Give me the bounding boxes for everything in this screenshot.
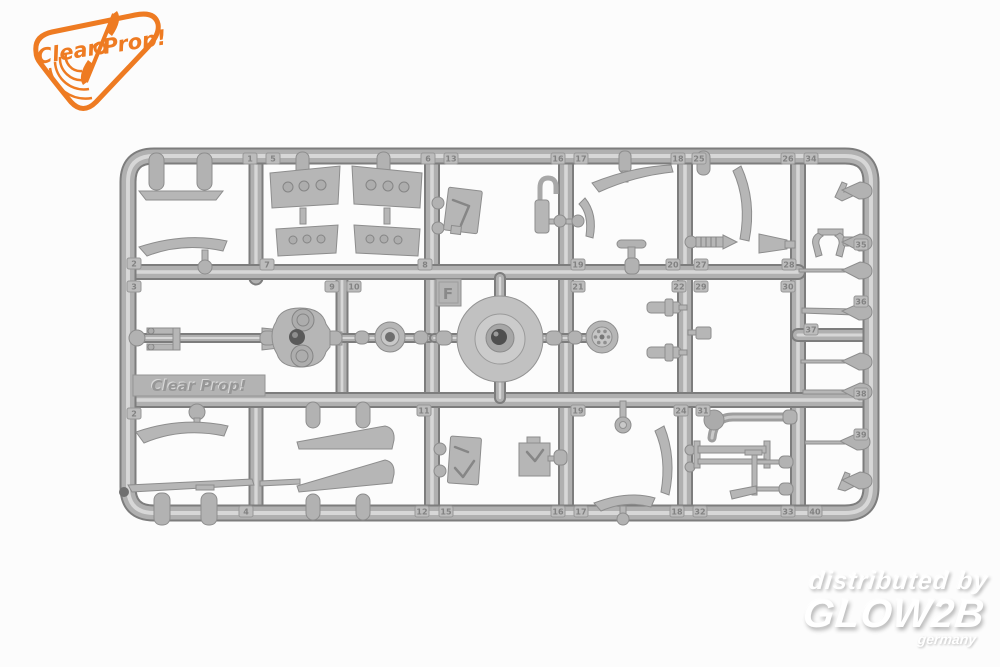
- part-number-tab: 3: [127, 281, 141, 292]
- svg-text:37: 37: [805, 326, 816, 335]
- part-number-tab: 7: [260, 259, 274, 270]
- part-number-tab: 13: [444, 153, 458, 164]
- part-number-tab: 12: [415, 506, 429, 517]
- svg-text:39: 39: [855, 431, 867, 440]
- part-needle-1: [799, 262, 872, 279]
- svg-text:3: 3: [131, 283, 137, 292]
- part-number-tab: 25: [692, 153, 706, 164]
- sprue-letter-plate: F: [436, 279, 461, 306]
- part-number-tab: 34: [804, 153, 818, 164]
- part-gear-door-left: [655, 426, 672, 495]
- svg-text:8: 8: [422, 261, 428, 270]
- svg-text:40: 40: [809, 508, 821, 517]
- part-number-tab: 17: [574, 506, 588, 517]
- part-number-tab: 39: [854, 429, 868, 440]
- svg-text:18: 18: [672, 155, 684, 164]
- svg-text:4: 4: [243, 508, 249, 517]
- part-number-tab: 37: [804, 324, 818, 335]
- part-number-tab: 35: [854, 239, 868, 250]
- part-number-tab: 22: [672, 281, 686, 292]
- svg-text:28: 28: [783, 261, 795, 270]
- svg-text:22: 22: [673, 283, 684, 292]
- part-number-tab: 24: [674, 405, 688, 416]
- svg-text:16: 16: [552, 155, 564, 164]
- part-canopy-blade-bottom: [136, 404, 228, 443]
- svg-text:30: 30: [782, 283, 794, 292]
- gate-mark: [119, 487, 129, 497]
- part-number-tab: 33: [781, 506, 795, 517]
- part-needle-3: [801, 353, 872, 370]
- part-number-tab: 15: [439, 506, 453, 517]
- svg-text:13: 13: [445, 155, 456, 164]
- part-exhaust-pipe: [704, 410, 797, 438]
- part-instrument-panels: [270, 152, 422, 256]
- svg-text:F: F: [443, 285, 453, 303]
- part-number-tab: 27: [694, 259, 708, 270]
- svg-text:38: 38: [855, 390, 867, 399]
- part-prop-blade-1: [297, 402, 394, 449]
- part-number-tab: 16: [551, 506, 565, 517]
- part-number-tab: 21: [571, 281, 585, 292]
- part-number-tab: 38: [854, 388, 868, 399]
- part-wheel-spoked: [568, 321, 618, 353]
- part-number-tab: 4: [239, 506, 253, 517]
- part-number-tab: 6: [421, 153, 435, 164]
- part-control-lever: [730, 450, 793, 499]
- svg-text:20: 20: [667, 261, 679, 270]
- part-number-tab: 28: [782, 259, 796, 270]
- svg-text:26: 26: [782, 155, 794, 164]
- svg-text:12: 12: [416, 508, 427, 517]
- part-small-bracket-bottom: [838, 472, 872, 491]
- part-engine-mount: [260, 308, 342, 367]
- svg-text:32: 32: [694, 508, 705, 517]
- svg-text:10: 10: [348, 283, 360, 292]
- svg-text:33: 33: [782, 508, 793, 517]
- svg-text:15: 15: [440, 508, 452, 517]
- part-number-tab: 40: [808, 506, 822, 517]
- svg-text:17: 17: [575, 508, 586, 517]
- part-number-tab: 18: [671, 153, 685, 164]
- part-number-tab: 30: [781, 281, 795, 292]
- svg-text:36: 36: [855, 298, 867, 307]
- svg-text:11: 11: [418, 407, 430, 416]
- part-number-tab: 18: [670, 506, 684, 517]
- part-number-tab: 17: [574, 153, 588, 164]
- svg-text:6: 6: [425, 155, 431, 164]
- svg-text:21: 21: [572, 283, 584, 292]
- svg-text:2: 2: [131, 410, 137, 419]
- svg-text:35: 35: [855, 241, 867, 250]
- part-number-tab: 32: [693, 506, 707, 517]
- part-number-tab: 10: [347, 281, 361, 292]
- part-number-tab: 9: [325, 281, 339, 292]
- part-number-tab: 26: [781, 153, 795, 164]
- part-number-tab: 8: [418, 259, 432, 270]
- svg-text:19: 19: [572, 261, 584, 270]
- product-photo-model-kit-sprue: Clear Prop!: [0, 0, 1000, 667]
- part-number-tab: 2: [127, 408, 141, 419]
- svg-text:17: 17: [575, 155, 586, 164]
- part-number-tab: 11: [417, 405, 431, 416]
- part-number-tab: 1: [243, 153, 257, 164]
- part-number-tab: 36: [854, 296, 868, 307]
- svg-text:1: 1: [247, 155, 253, 164]
- part-number-tab: 29: [694, 281, 708, 292]
- part-wheel-hub: [355, 322, 428, 352]
- svg-text:27: 27: [695, 261, 706, 270]
- part-cone-fairing: [759, 234, 795, 253]
- part-number-tab: 19: [571, 405, 585, 416]
- molded-logo-plate: Clear Prop! Clear Prop!: [133, 375, 265, 396]
- svg-text:5: 5: [270, 155, 276, 164]
- svg-text:16: 16: [552, 508, 564, 517]
- part-number-tab: 19: [571, 259, 585, 270]
- svg-text:29: 29: [695, 283, 707, 292]
- svg-text:31: 31: [697, 407, 709, 416]
- svg-text:19: 19: [572, 407, 584, 416]
- svg-text:2: 2: [131, 260, 137, 269]
- part-small-bracket-top: [835, 182, 872, 201]
- part-number-tab: 20: [666, 259, 680, 270]
- part-console-box: [434, 436, 482, 485]
- part-number-tab: 16: [551, 153, 565, 164]
- part-number-tab: 2: [127, 258, 141, 269]
- svg-text:18: 18: [671, 508, 683, 517]
- svg-text:25: 25: [693, 155, 705, 164]
- svg-text:7: 7: [264, 261, 270, 270]
- svg-text:Clear Prop!: Clear Prop!: [152, 377, 247, 395]
- svg-text:9: 9: [329, 283, 335, 292]
- svg-text:24: 24: [675, 407, 687, 416]
- part-screw-coupler: [685, 235, 737, 249]
- distributor-watermark: distributed by GLOW2B germany: [800, 567, 990, 647]
- svg-text:34: 34: [805, 155, 817, 164]
- part-number-tab: 31: [696, 405, 710, 416]
- part-number-tab: 5: [266, 153, 280, 164]
